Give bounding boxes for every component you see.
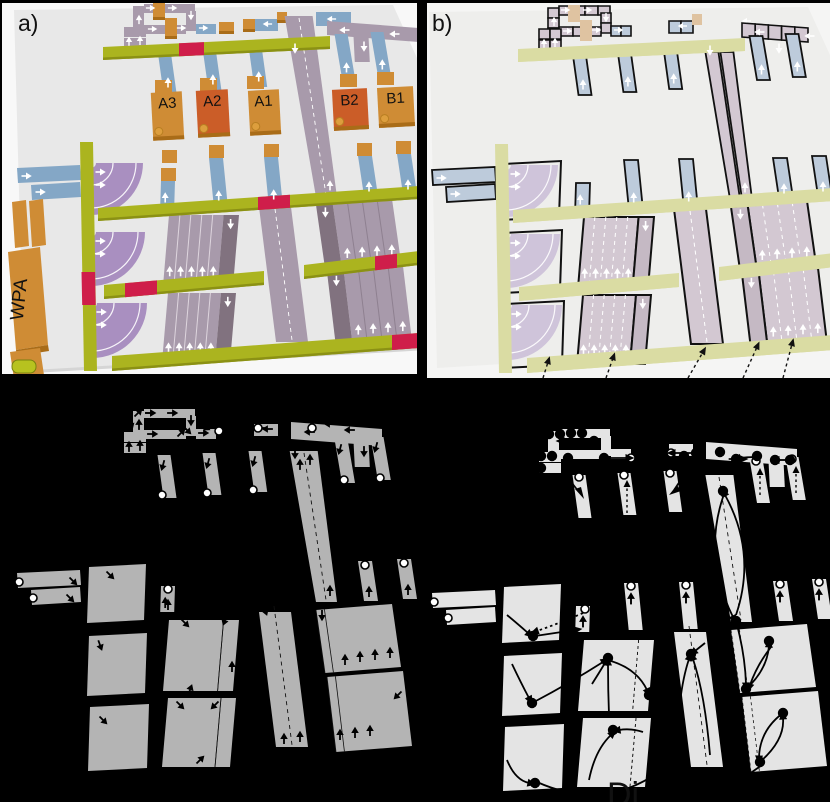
svg-text:A1: A1 xyxy=(254,93,273,111)
svg-text:a): a) xyxy=(18,10,38,36)
svg-text:b): b) xyxy=(432,10,452,36)
svg-text:A2: A2 xyxy=(203,93,222,111)
svg-text:WPA: WPA xyxy=(7,277,32,321)
svg-text:B1: B1 xyxy=(386,90,405,108)
svg-text:Di: Di xyxy=(607,776,639,802)
svg-text:A3: A3 xyxy=(158,95,177,113)
svg-text:B2: B2 xyxy=(340,92,359,110)
